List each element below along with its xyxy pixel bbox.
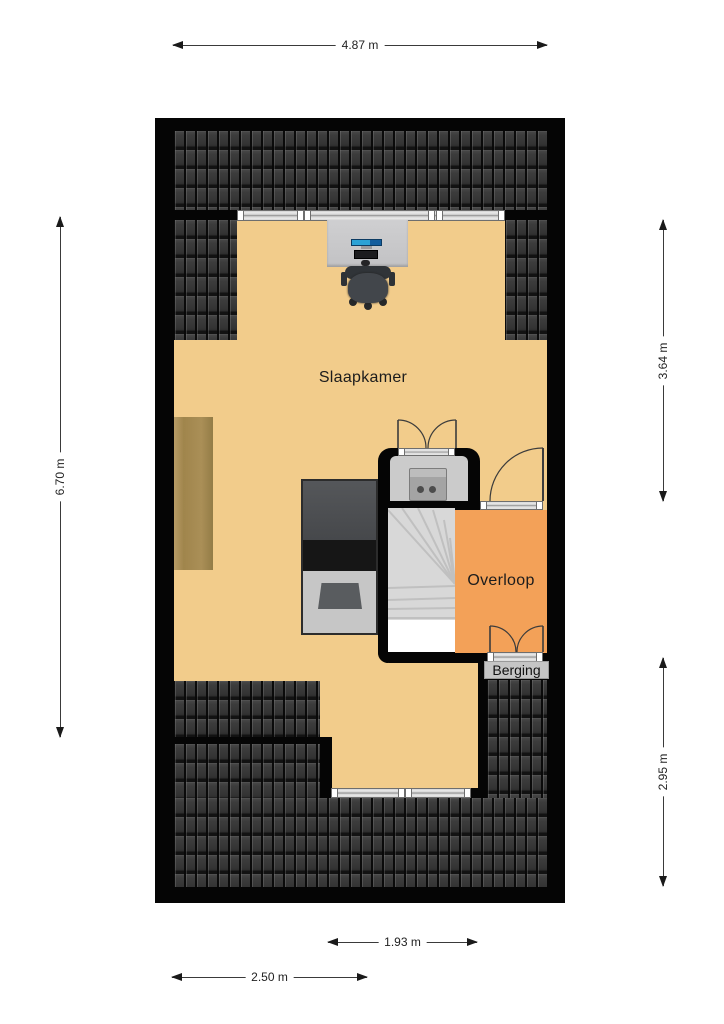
storage-label: Berging [484,661,549,679]
wardrobe [174,417,213,570]
bed [301,479,378,635]
dimension-right-upper-height: 3.64 m [657,220,669,501]
roof-tiles-left-upper [174,220,237,340]
floorplan: Overloop Berging Slaapkamer [155,118,565,903]
window-cap [304,210,311,221]
bed-band [303,540,376,571]
bedroom-label: Slaapkamer [283,369,443,387]
window-cap [436,210,443,221]
bed-duvet [303,481,376,540]
winder-stairs [388,508,455,652]
monitor-stand [361,246,372,249]
bedroom-floor-bottom-left [174,653,320,681]
dimension-bottom-outer-width: 2.50 m [172,971,367,983]
window-cap [464,788,471,798]
roof-tiles-left-mid [174,681,320,737]
window-cap [405,788,412,798]
window-cap [498,210,505,221]
stairs-wall-left [378,501,388,663]
window-cap [297,210,304,221]
roof-tiles-storage [487,680,547,798]
floorplan-canvas: Overloop Berging Slaapkamer [0,0,724,1024]
dimension-left-height: 6.70 m [54,217,66,737]
roof-tiles-left-low [174,744,320,798]
window-cap [428,210,435,221]
bed-pillow [318,583,362,609]
dimension-right-lower-height: 2.95 m [657,658,669,886]
window-cap [398,788,405,798]
storage-double-door-swing [488,624,545,652]
landing-door-threshold [480,501,543,510]
window-cap [237,210,244,221]
window-bottom [331,788,471,798]
roof-tiles-top [174,131,547,210]
door-cap [536,501,543,510]
washing-machine [409,468,447,501]
keyboard-icon [354,250,378,259]
landing-door-swing [488,446,545,501]
stairs-wall-bottom [378,652,487,663]
office-chair [341,266,395,310]
wall-right-of-bottom-window [471,788,487,798]
dimension-top-width: 4.87 m [173,39,547,51]
door-cap [480,501,487,510]
desk [327,220,408,267]
bedroom-floor-column [320,653,478,790]
closet-double-door-swing [396,418,458,450]
roof-tiles-right-upper [505,220,547,340]
dimension-bottom-inner-width: 1.93 m [328,936,477,948]
ridge-wall [172,737,322,744]
monitor-icon [351,239,382,246]
landing-label: Overloop [455,572,547,590]
roof-tiles-bottom [174,798,547,887]
window-cap [331,788,338,798]
